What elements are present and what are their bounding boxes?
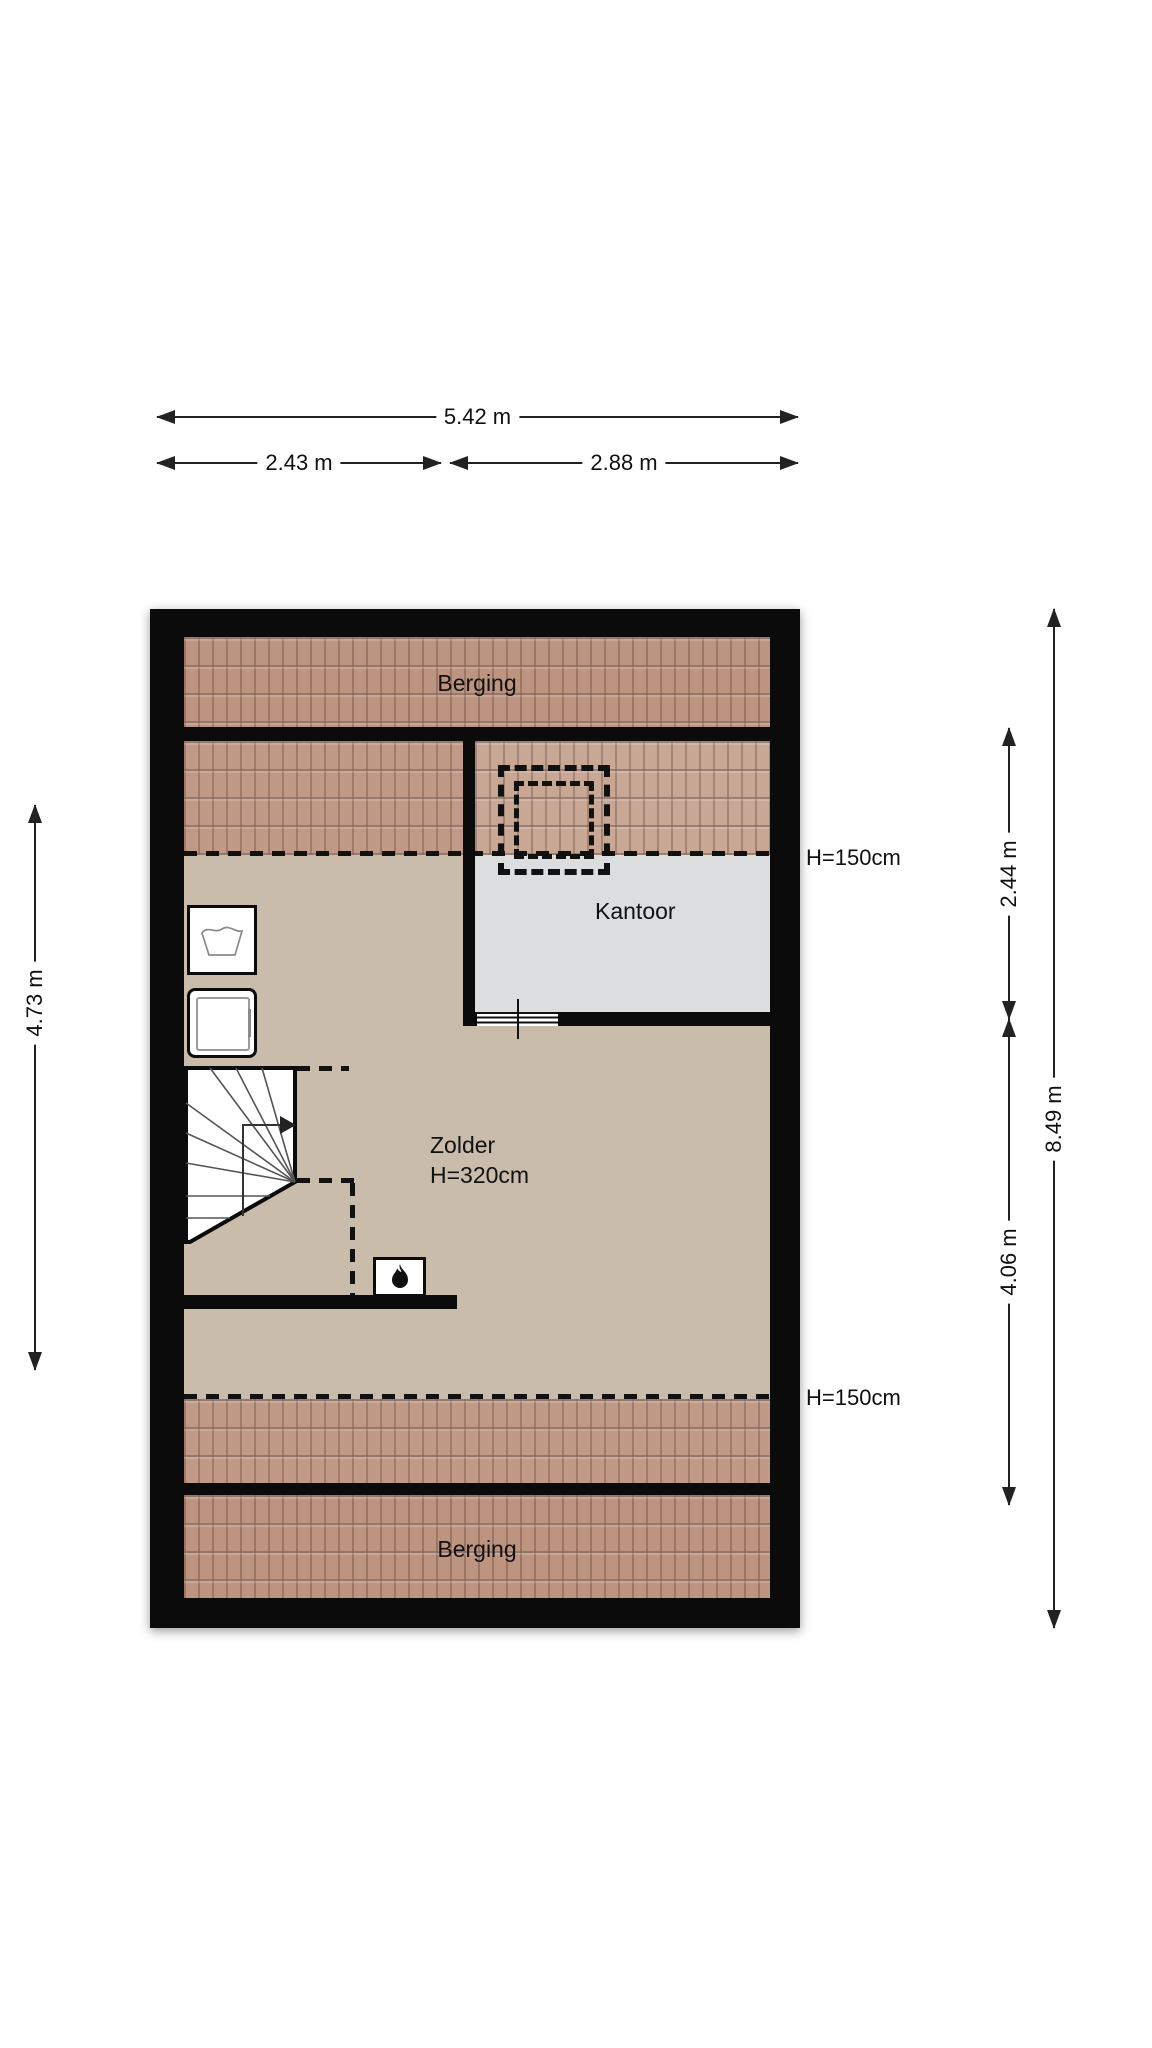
dim-label-top-right: 2.88 m (582, 450, 665, 476)
arrow-left-icon (156, 456, 175, 470)
arrow-right-icon (423, 456, 442, 470)
height-label-lower: H=150cm (806, 1385, 901, 1411)
tumble-dryer-icon (187, 988, 257, 1058)
door-opening-tick (517, 999, 519, 1039)
stair-dashed-line-mid (297, 1178, 355, 1183)
dim-right-upper: 2.44 m (999, 728, 1019, 1019)
arrow-right-icon (780, 410, 799, 424)
arrow-up-icon (1002, 1018, 1016, 1037)
arrow-up-icon (28, 804, 42, 823)
height-label-upper-text: H=150cm (806, 845, 901, 870)
berging-bottom-text: Berging (437, 1536, 516, 1562)
roof-window-dashed-inner (514, 781, 594, 859)
dim-label-top-left: 2.43 m (257, 450, 340, 476)
dim-label-right-lower: 4.06 m (996, 1220, 1022, 1303)
stair-dashed-line-top (297, 1066, 349, 1071)
dim-left-side: 4.73 m (25, 805, 45, 1370)
dim-top-total: 5.42 m (157, 407, 798, 427)
height-label-upper: H=150cm (806, 845, 901, 871)
room-label-kantoor: Kantoor (595, 898, 676, 925)
arrow-up-icon (1002, 727, 1016, 746)
dim-label-left-side: 4.73 m (22, 961, 48, 1044)
wood-stove (373, 1257, 426, 1297)
kantoor-text: Kantoor (595, 898, 676, 924)
dim-label-right-total: 8.49 m (1041, 1077, 1067, 1160)
bottom-roof-slope-tiles (184, 1399, 770, 1483)
dim-line (34, 805, 36, 1370)
arrow-down-icon (28, 1352, 42, 1371)
roof-height-dashed-line-upper (184, 851, 770, 856)
arrow-left-icon (449, 456, 468, 470)
height-label-lower-text: H=150cm (806, 1385, 901, 1410)
dim-right-lower: 4.06 m (999, 1019, 1019, 1505)
room-label-zolder: Zolder H=320cm (430, 1130, 529, 1190)
room-label-berging-bottom: Berging (184, 1536, 770, 1563)
room-label-berging-top: Berging (184, 670, 770, 697)
stair-dashed-line-down (350, 1183, 355, 1297)
dim-label-top-total: 5.42 m (436, 404, 519, 430)
arrow-left-icon (156, 410, 175, 424)
washing-machine-icon (187, 905, 257, 975)
zolder-roof-slope-tiles (184, 741, 463, 855)
dim-right-total: 8.49 m (1044, 609, 1064, 1628)
wall-above-berging-bottom (174, 1483, 780, 1495)
arrow-right-icon (780, 456, 799, 470)
berging-top-text: Berging (437, 670, 516, 696)
arrow-up-icon (1047, 608, 1061, 627)
dryer-handle (248, 1009, 251, 1037)
wall-below-berging-top (174, 727, 780, 741)
zolder-height-text: H=320cm (430, 1160, 529, 1190)
arrow-down-icon (1047, 1610, 1061, 1629)
floor-plan-page: 5.42 m 2.43 m 2.88 m 4.73 m 2.44 m 4.06 … (0, 0, 1152, 2048)
kantoor-left-wall (463, 741, 475, 1026)
arrow-down-icon (1002, 1487, 1016, 1506)
stove-stub-wall (174, 1295, 457, 1309)
laundry-tub-glyph (199, 921, 245, 959)
zolder-text: Zolder (430, 1130, 529, 1160)
dim-top-right: 2.88 m (450, 453, 798, 473)
stairs (184, 1066, 300, 1244)
flame-icon (389, 1263, 411, 1291)
dim-top-left: 2.43 m (157, 453, 441, 473)
kantoor-floor (475, 855, 770, 1012)
dim-label-right-upper: 2.44 m (996, 832, 1022, 915)
dryer-door (196, 997, 250, 1051)
